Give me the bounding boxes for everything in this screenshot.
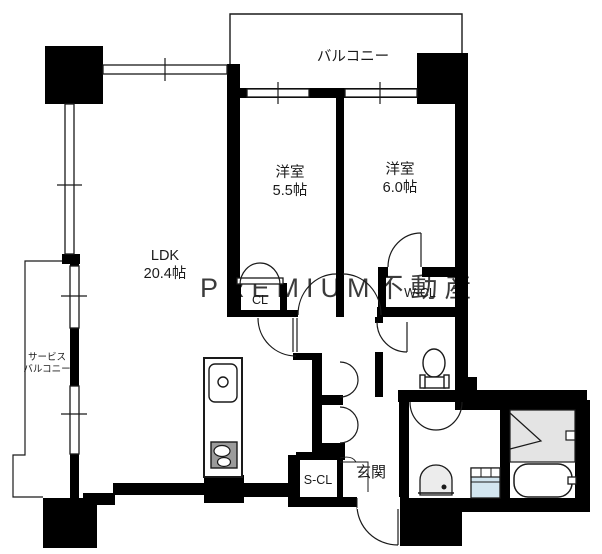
entrance-door-gap [357,497,400,509]
washroom-fold-left [410,402,436,430]
kitchen-sink [209,364,237,402]
bedroom2-name: 洋室 [386,161,415,178]
balcony-label: バルコニー [317,49,389,65]
bedroom2-size: 6.0帖 [383,179,418,196]
walk-in-closet-label: W-CL [404,286,436,300]
stove-burner-1 [214,446,230,457]
washbasin [418,465,454,495]
bathtub [514,464,572,497]
wcl-door-arc [388,233,421,267]
stove-burner-2 [218,458,231,467]
toilet-door-arc [377,322,407,352]
bedroom1-size: 5.5帖 [273,182,308,199]
shoe-closet-label: S-CL [304,473,333,487]
closet-label: CL [252,293,268,307]
service-balcony-label-line1: サービス [28,352,66,363]
storage1-fold-bottom [340,380,358,397]
ldk-door-arc [258,318,296,356]
entrance-door-arc [357,505,398,545]
floor-plan-drawing: PREMIUM不動産 [0,0,602,554]
ldk-size: 20.4帖 [144,265,187,282]
kitchen-counter [204,358,242,477]
shower-floor [510,410,575,462]
entrance-label: 玄関 [356,464,386,481]
toilet-fixture [420,349,449,388]
bedroom1-name: 洋室 [276,164,305,181]
bath-door-handle [566,431,575,440]
storage2-fold-bottom [340,425,358,443]
service-balcony-label-line2: バルコニー [23,364,70,375]
storage2-fold-top [340,407,358,425]
floor-plan: PREMIUM不動産 [0,0,602,554]
washing-machine-pan [471,468,500,498]
bathroom [510,410,576,497]
storage1-fold-top [340,362,358,380]
ldk-name: LDK [151,248,180,264]
bathtub-tap [568,477,576,484]
